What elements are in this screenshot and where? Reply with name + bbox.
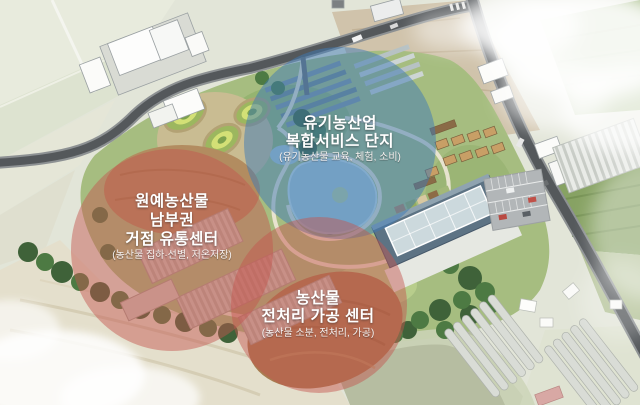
zone-title-line: 원예농산물 xyxy=(135,192,209,210)
parking-lot xyxy=(484,169,550,230)
zone-subtitle: (농산물 소분, 전처리, 가공) xyxy=(262,327,375,339)
zone-title-line: 남부권 xyxy=(150,210,194,229)
zone-title-line: 농산물 xyxy=(296,289,340,307)
zone-title-line: 전처리 가공 센터 xyxy=(262,307,375,325)
zone-title-line: 복합서비스 단지 xyxy=(286,132,394,150)
zone-subtitle: (유기농산물 교육, 체험, 소비) xyxy=(279,151,401,163)
site-map: 유기농산업 복합서비스 단지 (유기농산물 교육, 체험, 소비) 원예농산물 … xyxy=(0,0,640,405)
aerial-masterplan: 유기농산업 복합서비스 단지 (유기농산물 교육, 체험, 소비) 원예농산물 … xyxy=(0,0,640,405)
zone-subtitle: (농산물 집하·선별, 저온저장) xyxy=(112,248,232,261)
zone-title-line: 유기농산업 xyxy=(303,114,377,132)
zone-title-line: 거점 유통센터 xyxy=(125,229,218,248)
